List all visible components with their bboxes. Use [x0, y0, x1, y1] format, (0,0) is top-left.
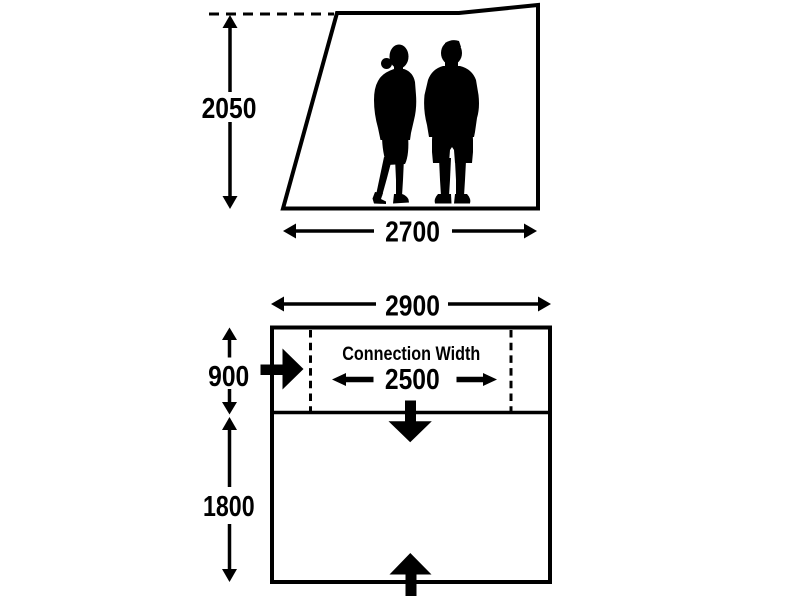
svg-text:2700: 2700 [385, 216, 440, 248]
svg-text:Connection Width: Connection Width [342, 343, 480, 365]
svg-text:900: 900 [208, 360, 249, 392]
svg-text:2500: 2500 [385, 363, 440, 395]
svg-text:2900: 2900 [385, 290, 440, 322]
svg-text:1800: 1800 [203, 489, 255, 522]
svg-text:2050: 2050 [202, 92, 257, 124]
